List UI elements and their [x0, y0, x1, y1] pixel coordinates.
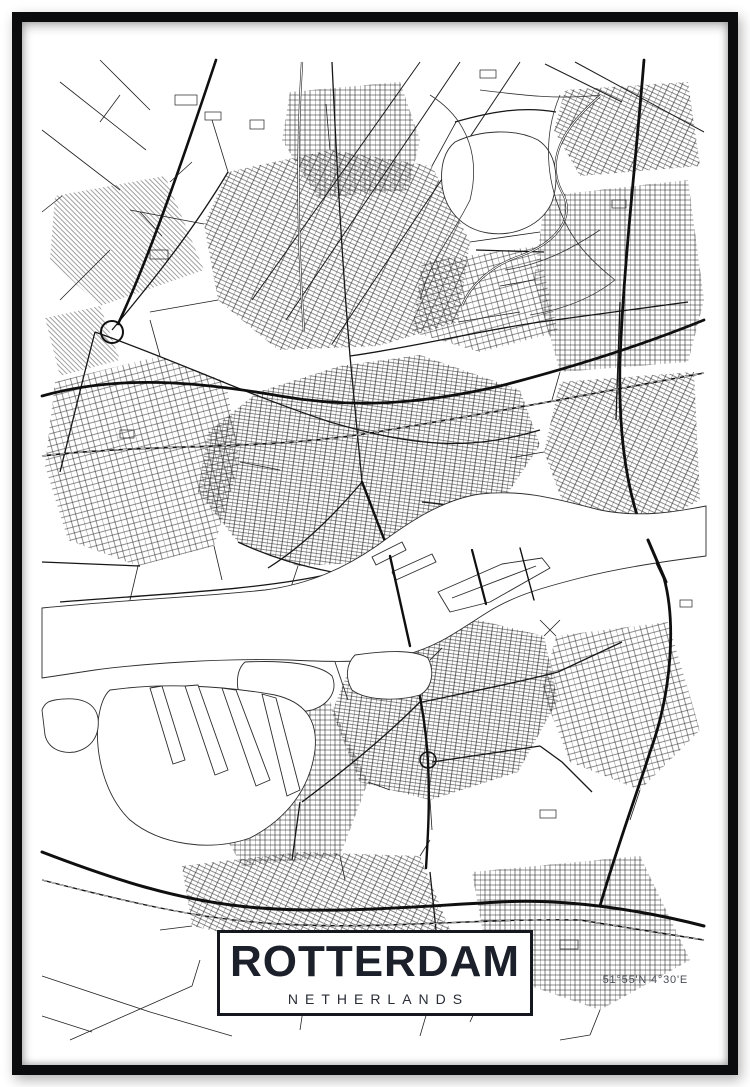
rijnhaven-basin — [347, 652, 431, 700]
eemhaven-basin — [42, 699, 98, 753]
kralingse-plas-lake — [442, 132, 556, 234]
city-title: ROTTERDAM — [230, 940, 520, 984]
coordinates-label: 51°55'N 4°30'E — [603, 974, 688, 986]
poster-frame: ROTTERDAM NETHERLANDS 51°55'N 4°30'E — [12, 12, 738, 1075]
country-subtitle: NETHERLANDS — [281, 991, 469, 1007]
rotterdam-street-map — [22, 22, 728, 1065]
title-plate: ROTTERDAM NETHERLANDS — [217, 930, 533, 1016]
poster-matte: ROTTERDAM NETHERLANDS 51°55'N 4°30'E — [22, 22, 728, 1065]
